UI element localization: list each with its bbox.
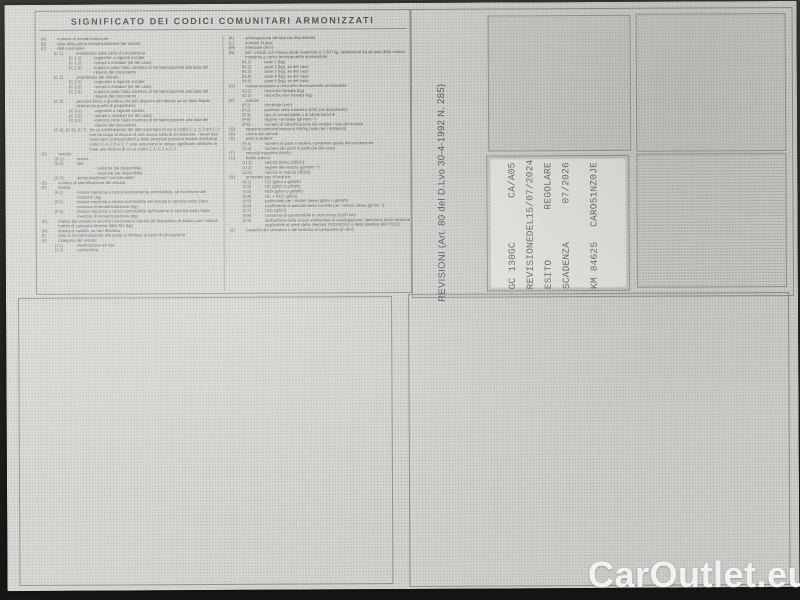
inspection-box-bottom-left: GC 130GC CA/A05 REVISIONE DEL15/07/2024 …: [486, 155, 630, 292]
blank-panel-bottom-right: [408, 292, 791, 587]
legend-left-column: (A) numero di immatricolazione (B) data …: [41, 36, 221, 292]
revisioni-label: REVISIONI (Art. 80 del D.Lvo 30-4-1992 N…: [436, 90, 451, 302]
legend-panel: SIGNIFICATO DEI CODICI COMUNITARI ARMONI…: [35, 9, 412, 295]
stamp-line: GC 130GC CA/A05: [506, 162, 525, 289]
stamp-line-left: KM 84625: [589, 242, 607, 289]
legend-item-text: Se un cambiamento dei dati nominativi di…: [89, 127, 220, 152]
legend-item-code: (C.4), (C.6), (C.7): [54, 128, 89, 152]
stamp-line-right: REGOLARE: [542, 162, 560, 209]
stamp-line: SCADENZA 07/2026: [560, 162, 579, 289]
legend-item-code: (G): [42, 219, 59, 229]
stamp-line-left: REVISIONE: [525, 236, 543, 289]
stamp-line-right: 07/2026: [560, 162, 578, 203]
blank-panel-bottom-left: [18, 296, 394, 586]
stamp-line-left: GC 130GC: [507, 242, 525, 289]
legend-title: SIGNIFICATO DEI CODICI COMUNITARI ARMONI…: [39, 13, 407, 31]
legend-item-code: (Z): [230, 228, 247, 233]
legend-item-text: capacità del serbatoio o dei serbatoi di…: [246, 227, 412, 233]
stamp-line-right: DEL15/07/2024: [524, 159, 542, 236]
revision-stamp: GC 130GC CA/A05 REVISIONE DEL15/07/2024 …: [490, 159, 626, 288]
legend-item-text: carrozzeria: [77, 247, 221, 253]
stamp-line-left: SCADENZA: [561, 242, 579, 289]
stamp-line-left: ESITO: [543, 260, 561, 290]
legend-item: (Z) capacità del serbatoio o dei serbato…: [230, 227, 412, 233]
inspection-box-bottom-right: [636, 153, 787, 288]
revisioni-panel: REVISIONI (Art. 80 del D.Lvo 30-4-1992 N…: [410, 7, 794, 298]
legend-item-code: (J.2): [55, 248, 78, 253]
inspection-box-top-right: [636, 13, 787, 152]
stamp-line: KM 84625 CARO51NZ0JE: [588, 162, 607, 289]
stamp-line-right: CARO51NZ0JE: [588, 162, 606, 227]
legend-right-column: (K) omologazione del tipo (se disponibil…: [223, 35, 412, 291]
legend-item-code: (F.3): [55, 209, 78, 219]
inspection-box-top-left: [488, 15, 632, 152]
stamp-line-right: CA/A05: [506, 162, 524, 198]
legend-item: (J.2) carrozzeria: [42, 247, 221, 253]
legend-item: (C.4), (C.6), (C.7) Se un cambiamento de…: [41, 127, 220, 152]
paper-sheet: SIGNIFICATO DEI CODICI COMUNITARI ARMONI…: [4, 1, 799, 591]
watermark: CarOutlet.eu: [588, 554, 800, 596]
stamp-line: ESITO REGOLARE: [542, 162, 561, 289]
stamp-line: REVISIONE DEL15/07/2024: [524, 162, 543, 289]
